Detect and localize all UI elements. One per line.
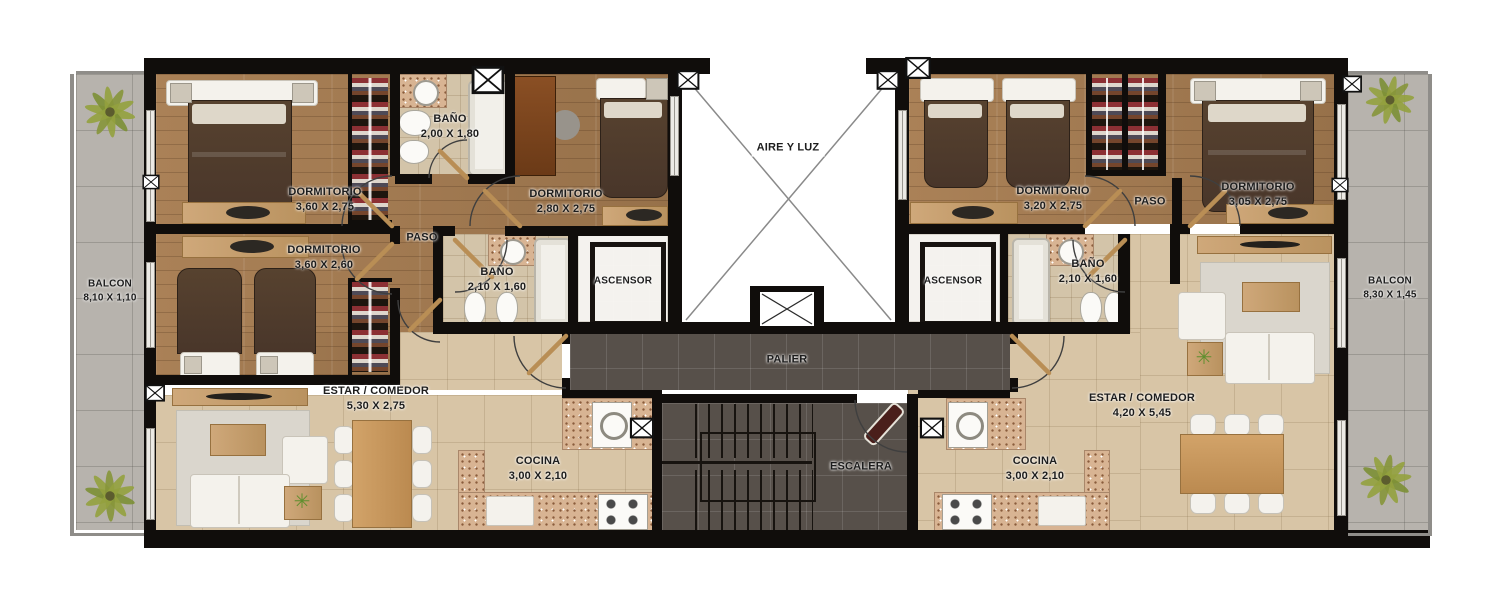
wall	[144, 530, 1430, 548]
bed-fold	[1208, 150, 1306, 155]
wall	[443, 226, 455, 236]
label-ascensor-left: ASCENSOR	[594, 274, 652, 288]
window	[1337, 258, 1346, 348]
stove-cooktop	[942, 494, 992, 530]
room-name: BALCON	[88, 279, 132, 290]
room-dims: 5,30 X 2,75	[323, 399, 429, 414]
room-dims: 3,60 X 2,60	[287, 258, 360, 273]
bidet	[496, 292, 518, 326]
tv	[1240, 241, 1300, 248]
dining-chair	[412, 426, 432, 454]
bed-headboard	[1002, 78, 1076, 102]
room-name: DORMITORIO	[288, 186, 361, 198]
room-name: BALCON	[1368, 276, 1412, 287]
label-estar-left: ESTAR / COMEDOR 5,30 X 2,75	[323, 384, 429, 414]
wall	[155, 224, 390, 234]
wall	[1158, 74, 1166, 174]
single-bed	[254, 268, 316, 354]
sofa-cushion-line	[1268, 334, 1270, 380]
bench-lamp	[260, 356, 278, 374]
balcony-rail	[70, 74, 74, 536]
room-dims: 2,80 X 2,75	[529, 202, 602, 217]
toilet	[1080, 292, 1102, 326]
bathtub	[534, 238, 572, 326]
wall	[918, 390, 1010, 398]
wall	[1010, 378, 1018, 392]
stair-mid-rail	[662, 461, 812, 464]
sofa-cushion-line	[238, 476, 240, 524]
room-dims: 8,30 X 1,45	[1363, 288, 1416, 302]
bed-pillow	[928, 104, 982, 118]
washer-drum-icon	[600, 412, 628, 440]
balcony-rail	[72, 533, 144, 536]
room-dims: 3,00 X 2,10	[1006, 469, 1064, 484]
wall	[395, 174, 432, 184]
tv	[206, 393, 272, 400]
room-name: COCINA	[516, 455, 561, 467]
lightwell-window	[898, 110, 907, 200]
washing-machine	[592, 402, 632, 448]
dining-chair	[412, 494, 432, 522]
balcony-door-window	[1337, 420, 1346, 516]
desk-chair	[226, 206, 270, 219]
dining-chair	[1258, 492, 1284, 514]
wall	[907, 394, 918, 530]
dining-chair	[412, 460, 432, 488]
coffee-table	[1242, 282, 1300, 312]
wall	[348, 278, 392, 282]
dresser-vanity	[514, 76, 556, 176]
room-name: PASO	[406, 232, 437, 244]
dining-chair	[1258, 414, 1284, 436]
bed-headboard	[920, 78, 994, 102]
wall	[1086, 74, 1092, 174]
stair-handrail	[700, 432, 816, 502]
wall	[348, 220, 392, 224]
label-bano-2: BAÑO 2,10 X 1,60	[468, 265, 526, 295]
wall	[144, 58, 710, 74]
label-escalera: ESCALERA	[830, 460, 892, 475]
wall	[568, 234, 578, 322]
bed-fold	[192, 152, 286, 157]
room-dims: 2,00 X 1,80	[421, 127, 479, 142]
wall	[390, 74, 400, 176]
window	[146, 110, 155, 222]
room-name: ASCENSOR	[924, 275, 982, 286]
balcony-rail	[1348, 533, 1428, 536]
desk-chair	[952, 206, 994, 219]
room-name: ASCENSOR	[594, 275, 652, 286]
room-name: DORMITORIO	[529, 188, 602, 200]
wall	[652, 390, 662, 530]
window	[1337, 104, 1346, 200]
desk-chair	[230, 240, 274, 253]
nightstand	[292, 83, 314, 103]
wall	[390, 288, 400, 375]
label-cocina-left: COCINA 3,00 X 2,10	[509, 454, 567, 484]
wall	[1170, 224, 1190, 234]
room-dims: 2,10 X 1,60	[1059, 272, 1117, 287]
room-name: PASO	[1134, 196, 1165, 208]
wall	[908, 224, 1085, 234]
bench-lamp	[184, 356, 202, 374]
wash-basin	[500, 239, 526, 265]
room-name: BAÑO	[480, 266, 513, 278]
label-dormitorio-1: DORMITORIO 3,60 X 2,75	[288, 185, 361, 215]
room-name: ESTAR / COMEDOR	[323, 385, 429, 397]
bed-pillow	[1208, 104, 1306, 122]
dining-chair	[334, 494, 354, 522]
armchair	[1178, 292, 1226, 340]
room-name: BAÑO	[433, 113, 466, 125]
room-dims: 3,05 X 2,75	[1221, 195, 1294, 210]
wardrobe	[352, 282, 388, 372]
floor-plan: ✳ ✳	[0, 0, 1500, 600]
wardrobe	[1128, 78, 1158, 170]
bed-pillow	[1010, 104, 1064, 118]
nightstand	[1300, 81, 1322, 101]
kitchen-sink	[486, 496, 534, 526]
room-dims: 3,00 X 2,10	[509, 469, 567, 484]
wall	[505, 226, 680, 236]
balcony-door-window	[146, 428, 155, 520]
nightstand	[170, 83, 192, 103]
room-name: DORMITORIO	[1221, 181, 1294, 193]
label-paso-left: PASO	[406, 231, 437, 246]
dining-table	[1180, 434, 1284, 494]
room-dims: 3,20 X 2,75	[1016, 199, 1089, 214]
dining-chair	[1224, 492, 1250, 514]
nightstand	[646, 78, 668, 100]
room-name: PALIER	[767, 354, 808, 366]
nightstand	[1194, 81, 1216, 101]
coffee-table	[210, 424, 266, 456]
dining-chair	[1190, 492, 1216, 514]
label-dormitorio-4: DORMITORIO 3,20 X 2,75	[1016, 184, 1089, 214]
wall	[1118, 234, 1130, 322]
dining-chair	[334, 426, 354, 454]
room-dims: 4,20 X 5,45	[1089, 406, 1195, 421]
floor-hall-left	[400, 332, 562, 390]
room-dims: 2,10 X 1,60	[468, 280, 526, 295]
label-dormitorio-5: DORMITORIO 3,05 X 2,75	[1221, 180, 1294, 210]
label-aire-y-luz: AIRE Y LUZ	[752, 140, 825, 157]
room-name: ESCALERA	[830, 461, 892, 473]
dining-chair	[1224, 414, 1250, 436]
balcony-rail	[1428, 74, 1432, 536]
vent-shaft	[760, 292, 814, 326]
room-name: BAÑO	[1071, 258, 1104, 270]
bathtub	[1012, 238, 1050, 326]
window	[146, 262, 155, 348]
bed-pillow	[604, 102, 662, 118]
wall	[562, 332, 570, 344]
wall	[1086, 170, 1166, 176]
floor-balcony-right	[1348, 74, 1428, 530]
wall	[1240, 224, 1334, 234]
stove-cooktop	[598, 494, 648, 530]
balcony-rail	[1348, 71, 1428, 74]
label-dormitorio-3: DORMITORIO 3,60 X 2,60	[287, 243, 360, 273]
label-ascensor-right: ASCENSOR	[924, 274, 982, 288]
label-balcon-left: BALCON 8,10 X 1,10	[83, 278, 136, 305]
sofa	[190, 474, 290, 528]
washing-machine	[948, 402, 988, 448]
label-dormitorio-2: DORMITORIO 2,80 X 2,75	[529, 187, 602, 217]
label-bano-3: BAÑO 2,10 X 1,60	[1059, 257, 1117, 287]
wall	[866, 58, 1334, 74]
label-paso-right: PASO	[1134, 195, 1165, 210]
wall	[348, 278, 352, 375]
room-name: COCINA	[1013, 455, 1058, 467]
label-cocina-right: COCINA 3,00 X 2,10	[1006, 454, 1064, 484]
label-estar-right: ESTAR / COMEDOR 4,20 X 5,45	[1089, 391, 1195, 421]
single-bed	[177, 268, 242, 354]
plant-icon: ✳	[294, 492, 311, 512]
wall	[1000, 234, 1008, 322]
wall	[1010, 332, 1018, 344]
bed-pillow	[192, 104, 286, 124]
dining-chair	[334, 460, 354, 488]
sofa	[1225, 332, 1315, 384]
wall	[390, 226, 400, 244]
lightwell-window	[670, 96, 679, 176]
room-name: DORMITORIO	[1016, 185, 1089, 197]
wall	[468, 174, 515, 184]
room-dims: 3,60 X 2,75	[288, 200, 361, 215]
label-palier: PALIER	[767, 353, 808, 368]
label-balcon-right: BALCON 8,30 X 1,45	[1363, 275, 1416, 302]
label-bano-1: BAÑO 2,00 X 1,80	[421, 112, 479, 142]
bidet	[399, 140, 429, 164]
wash-basin	[413, 80, 439, 106]
balcony-rail	[76, 71, 144, 74]
washer-drum-icon	[956, 412, 984, 440]
room-dims: 8,10 X 1,10	[83, 291, 136, 305]
toilet	[464, 292, 486, 326]
kitchen-sink	[1038, 496, 1086, 526]
wall	[1172, 178, 1182, 224]
dining-table	[352, 420, 412, 528]
bed-headboard	[596, 78, 646, 100]
plant-icon: ✳	[1196, 348, 1213, 368]
floor-lightwell	[682, 74, 895, 322]
wall	[1122, 74, 1128, 174]
room-name: AIRE Y LUZ	[757, 142, 820, 154]
wardrobe	[1092, 78, 1122, 170]
room-name: DORMITORIO	[287, 244, 360, 256]
wall	[562, 390, 654, 398]
wall	[1170, 234, 1180, 284]
wall	[652, 394, 857, 403]
wall	[505, 74, 515, 178]
room-name: ESTAR / COMEDOR	[1089, 392, 1195, 404]
desk-chair	[626, 209, 662, 221]
